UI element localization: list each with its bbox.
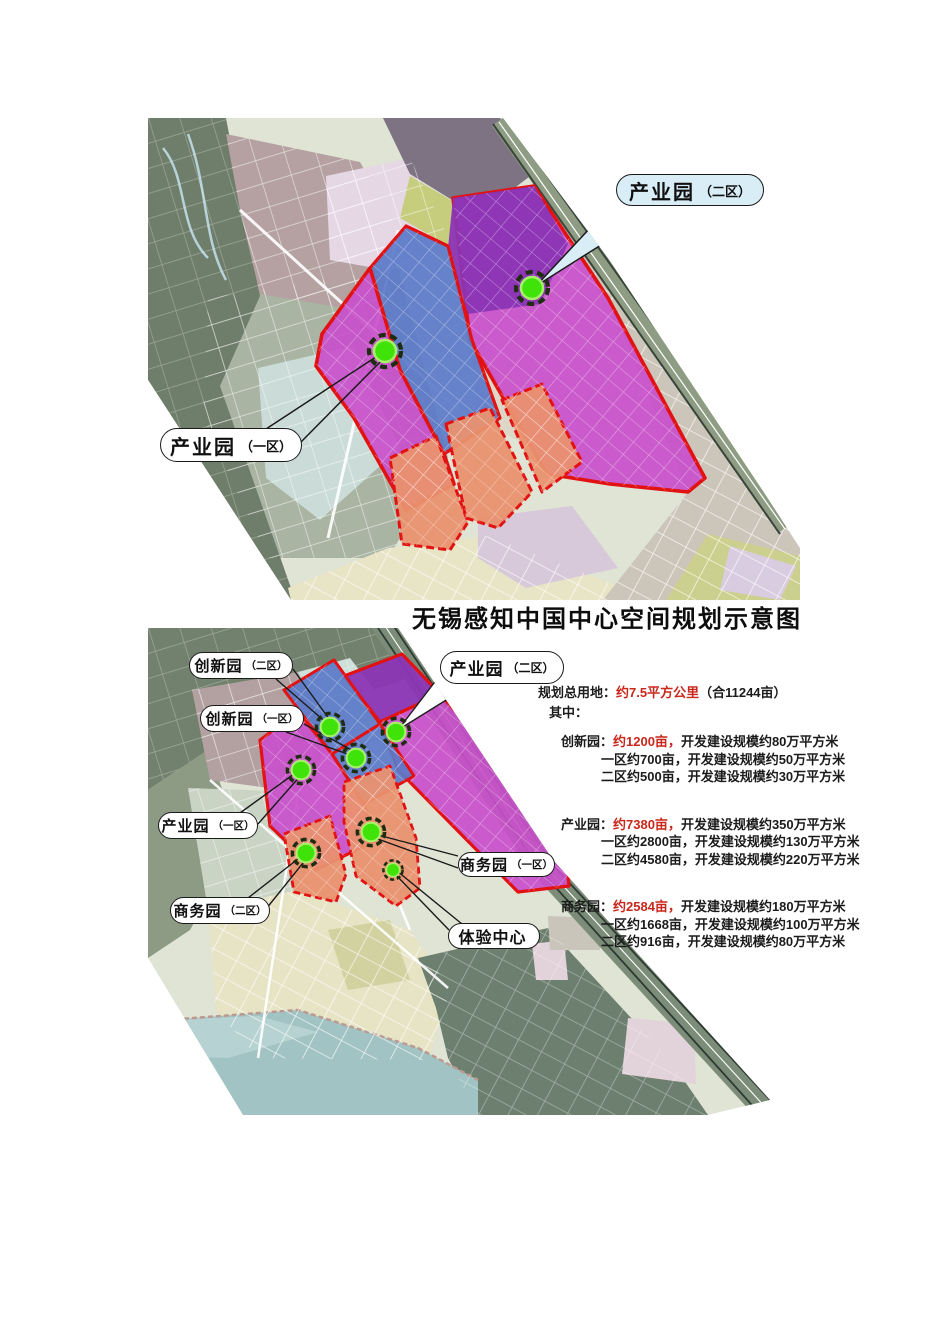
document-page: 产业园（二区） 产业园（一区） 无锡感知中国中心空间规划示意图 [0, 0, 950, 1344]
label-text: 创新园 [206, 708, 254, 729]
marker-innovation-park-2 [316, 713, 343, 740]
label-suffix: （一区） [240, 436, 292, 455]
marker-business-park-2 [292, 839, 319, 866]
stats-among-label: 其中： [549, 704, 938, 722]
label-industrial-park-zone1: 产业园（一区） [158, 812, 258, 839]
label-innovation-park-zone1: 创新园（一区） [200, 705, 304, 732]
stats-total-label: 规划总用地： [538, 685, 616, 700]
stats-total-value: 约7.5平方公里 [616, 685, 699, 700]
label-experience-center: 体验中心 [448, 923, 540, 949]
stats-group-industrial: 产业园：约7380亩，开发建设规模约350万平方米 一区约2800亩，开发建设规… [561, 816, 938, 869]
marker-business-park-1 [357, 818, 384, 845]
marker-experience-center [383, 860, 402, 879]
stats-group-headline: 创新园：约1200亩，开发建设规模约80万平方米 [561, 733, 938, 751]
label-top-industrial-park-zone2: 产业园（二区） [616, 174, 764, 206]
group-name: 创新园： [561, 734, 613, 749]
stats-total-line: 规划总用地：约7.5平方公里（合11244亩） [538, 684, 938, 702]
label-text: 产业园 [162, 815, 210, 836]
group-name: 产业园： [561, 817, 613, 832]
label-innovation-park-zone2: 创新园（二区） [189, 652, 293, 679]
label-business-park-zone2: 商务园（二区） [170, 897, 270, 924]
stats-subline: 二区约500亩，开发建设规模约30万平方米 [601, 768, 938, 786]
stats-total-extra: （合11244亩） [699, 685, 786, 700]
label-text: 产业园 [449, 655, 503, 680]
label-suffix: （二区） [225, 903, 267, 918]
stats-subline: 一区约1668亩，开发建设规模约100万平方米 [601, 916, 938, 934]
marker-industrial-park-1 [369, 335, 401, 367]
stats-group-business: 商务园：约2584亩，开发建设规模约180万平方米 一区约1668亩，开发建设规… [561, 898, 938, 951]
group-name: 商务园： [561, 899, 613, 914]
stats-subline: 一区约700亩，开发建设规模约50万平方米 [601, 751, 938, 769]
stats-subline: 二区约4580亩，开发建设规模约220万平方米 [601, 851, 938, 869]
label-suffix: （一区） [257, 711, 299, 726]
stats-group-headline: 产业园：约7380亩，开发建设规模约350万平方米 [561, 816, 938, 834]
label-text: 产业园 [170, 431, 236, 460]
label-suffix: （二区） [246, 658, 288, 673]
marker-industrial-park-2 [516, 272, 548, 304]
group-rest: 开发建设规模约80万平方米 [681, 734, 838, 749]
group-value: 约2584亩， [613, 899, 681, 914]
marker-industrial-park-2 [382, 718, 409, 745]
stats-group-headline: 商务园：约2584亩，开发建设规模约180万平方米 [561, 898, 938, 916]
label-suffix: （二区） [699, 181, 751, 200]
label-text: 产业园 [629, 176, 695, 205]
group-value: 约7380亩， [613, 817, 681, 832]
label-top-industrial-park-zone1: 产业园（一区） [160, 428, 302, 462]
label-text: 商务园 [460, 854, 508, 875]
label-text: 商务园 [174, 900, 222, 921]
label-industrial-park-zone2: 产业园（二区） [440, 651, 564, 684]
stats-group-innovation: 创新园：约1200亩，开发建设规模约80万平方米 一区约700亩，开发建设规模约… [561, 733, 938, 786]
group-rest: 开发建设规模约350万平方米 [681, 817, 846, 832]
marker-innovation-park-1 [342, 744, 369, 771]
label-text: 创新园 [195, 655, 243, 676]
marker-industrial-park-1 [287, 756, 314, 783]
planning-stats: 规划总用地：约7.5平方公里（合11244亩） 其中： 创新园：约1200亩，开… [538, 684, 938, 951]
group-value: 约1200亩， [613, 734, 681, 749]
stats-subline: 二区约916亩，开发建设规模约80万平方米 [601, 933, 938, 951]
label-suffix: （一区） [213, 818, 255, 833]
stats-subline: 一区约2800亩，开发建设规模约130万平方米 [601, 833, 938, 851]
label-suffix: （二区） [506, 659, 554, 676]
group-rest: 开发建设规模约180万平方米 [681, 899, 846, 914]
label-text: 体验中心 [458, 924, 526, 948]
